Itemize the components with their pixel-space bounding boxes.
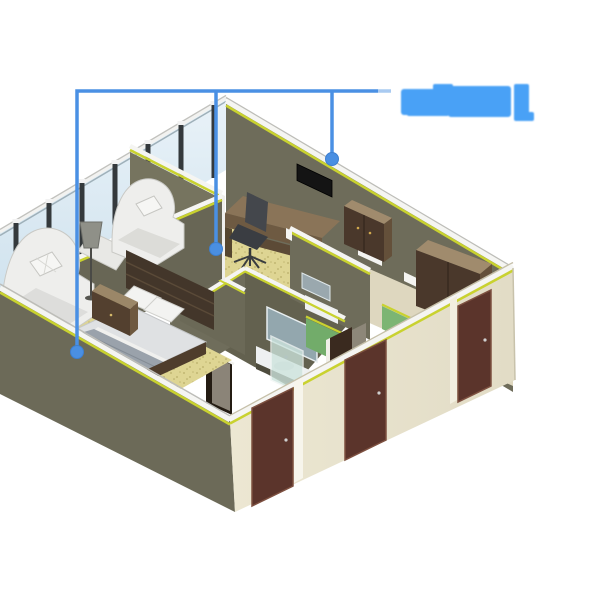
desk-leg-left [225, 227, 232, 258]
cabinet-side [384, 218, 392, 262]
cabinet-handle [369, 232, 372, 235]
nightstand-handle [110, 314, 113, 317]
door-leaf [252, 388, 293, 506]
callout-dot-3 [326, 153, 339, 166]
isometric-model-figure [0, 0, 600, 607]
door-handle [377, 391, 380, 394]
entry-door-2 [345, 340, 386, 460]
callout-dot-2 [210, 243, 223, 256]
callout-dot-1 [71, 346, 84, 359]
entry-door-1 [252, 388, 293, 506]
cabinet-handle [357, 227, 360, 230]
screenshot-canvas [0, 0, 600, 607]
door-handle [483, 338, 486, 341]
door-handle [284, 438, 287, 441]
wall-seam [294, 377, 303, 483]
door-leaf [458, 290, 491, 402]
lamp-shade [80, 222, 102, 248]
callout-label-blob [401, 84, 534, 121]
wall-seam [450, 296, 457, 404]
door-leaf [345, 340, 386, 460]
entry-door-3 [458, 290, 491, 402]
